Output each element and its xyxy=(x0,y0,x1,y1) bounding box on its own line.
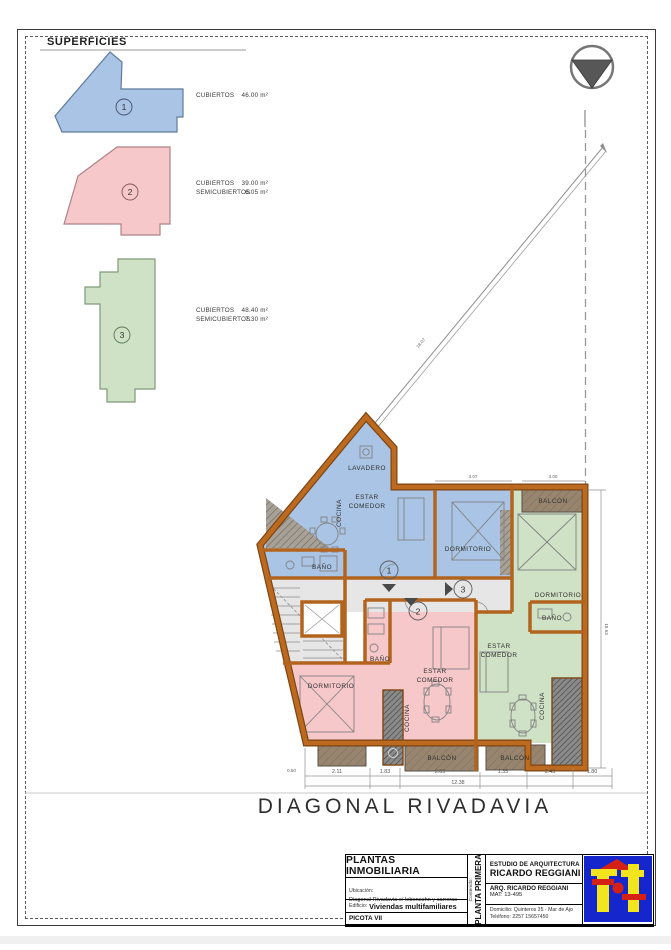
svg-text:3: 3 xyxy=(461,585,466,595)
location-label: Ubicación: xyxy=(349,888,373,894)
svg-text:1: 1 xyxy=(387,566,392,576)
dim-total: 12.38 xyxy=(451,780,464,786)
dim-top-left: 3.07 xyxy=(469,474,478,479)
room-label-balcon-top: BALCÓN xyxy=(538,496,567,505)
architect-matricula: MAT: 13-495 xyxy=(490,892,582,898)
room-label-dormitorio-u3: DORMITORIO xyxy=(535,592,581,599)
legend-unit2-number: 2 xyxy=(128,187,133,197)
location-row: Ubicación: Diagonal Rivadavia e/ lebenso… xyxy=(346,878,467,900)
hall-area xyxy=(345,578,512,612)
studio-line2: RICARDO REGGIANI xyxy=(490,868,582,878)
content-value: PLANTA PRIMERA xyxy=(475,855,484,924)
firm-logo xyxy=(583,855,653,924)
room-label-balcon-2: BALCÓN xyxy=(500,753,529,762)
legend-unit2-shape: 2 xyxy=(64,147,170,235)
dim-left-small: 0.50 xyxy=(287,768,296,773)
legend-unit2-semicubiertos-label: SEMICUBIERTOS xyxy=(196,189,251,196)
drawing: SUPERFICIES 1 CUBIERTOS 46.00 m² 2 CUBIE… xyxy=(0,0,671,950)
dim-seg-1: 2.11 xyxy=(332,769,342,775)
room-label-cocina-u3: COCINA xyxy=(539,692,546,720)
unit3-service-shaft xyxy=(552,678,582,767)
studio-phone: Teléfono: 2257 15657450 xyxy=(490,914,582,921)
svg-text:2: 2 xyxy=(416,607,421,617)
building-label: Edificio: xyxy=(349,903,367,909)
legend-unit3-semicubiertos-label: SEMICUBIERTOS xyxy=(196,316,251,323)
room-label-cocina-u2: COCINA xyxy=(404,704,411,732)
interunit-hatch xyxy=(500,510,512,575)
room-label-comedor-u1: COMEDOR xyxy=(349,503,386,510)
unit2-service-shaft xyxy=(383,690,403,765)
room-label-comedor-u2: COMEDOR xyxy=(417,677,454,684)
studio-line1: ESTUDIO DE ARQUITECTURA xyxy=(490,861,582,868)
legend-unit3-cubiertos-value: 48.40 m² xyxy=(242,307,268,314)
legend-unit3-shape: 3 xyxy=(85,259,155,402)
legend-unit2-cubiertos-label: CUBIERTOS xyxy=(196,180,234,187)
room-label-comedor-u3: COMEDOR xyxy=(481,652,518,659)
room-label-balcon-1: BALCÓN xyxy=(427,753,456,762)
building-value: Viviendas multifamiliares xyxy=(369,902,456,911)
title-block-left: PLANTAS INMOBILIARIA Ubicación: Diagonal… xyxy=(346,855,468,924)
room-label-bano-u1: BAÑO xyxy=(312,562,332,571)
architect-name: ARQ. RICARDO REGGIANI xyxy=(490,885,582,892)
room-label-estar-u3: ESTAR xyxy=(487,643,510,650)
dim-seg-2: 1.83 xyxy=(380,769,390,775)
room-label-dormitorio-u2: DORMITORIO xyxy=(308,683,354,690)
property-line-diagonal: 18.07 xyxy=(374,143,607,428)
building-row: Edificio: Viviendas multifamiliares xyxy=(346,900,467,913)
dim-right-vertical: 18.63 xyxy=(604,623,609,635)
sheet-title: PLANTAS INMOBILIARIA xyxy=(346,855,467,878)
title-block-studio: ESTUDIO DE ARQUITECTURA RICARDO REGGIANI… xyxy=(486,855,583,924)
dim-seg-4: 1.35 xyxy=(498,769,508,775)
legend-unit3-semicubiertos-value: 7.30 m² xyxy=(245,316,268,323)
project-code: PICOTA VII xyxy=(346,913,467,924)
legend-unit1-cubiertos-label: CUBIERTOS xyxy=(196,92,234,99)
dim-seg-5: 2.43 xyxy=(545,769,555,775)
diagonal-dimension: 18.07 xyxy=(415,337,426,349)
north-arrow-icon xyxy=(571,46,613,127)
room-label-lavadero: LAVADERO xyxy=(348,465,386,472)
studio-address: Domicilio: Quinteros 35 - Mar de Ajo xyxy=(490,907,582,914)
street-name: DIAGONAL RIVADAVIA xyxy=(258,795,553,818)
legend-unit1-number: 1 xyxy=(122,102,127,112)
legend-unit2-semicubiertos-value: 6.05 m² xyxy=(245,189,268,196)
legend-unit2-cubiertos-value: 39.00 m² xyxy=(242,180,268,187)
room-label-bano-u3: BAÑO xyxy=(542,613,562,622)
room-label-dormitorio-u1: DORMITORIO xyxy=(445,546,491,553)
dim-top-right: 3.00 xyxy=(549,474,558,479)
room-label-estar-u1: ESTAR xyxy=(355,494,378,501)
legend-unit1-cubiertos-value: 46.00 m² xyxy=(242,92,268,99)
legend-unit1-shape: 1 xyxy=(55,52,183,132)
legend-unit3-number: 3 xyxy=(120,330,125,340)
title-block: PLANTAS INMOBILIARIA Ubicación: Diagonal… xyxy=(345,854,654,927)
legend-unit3-cubiertos-label: CUBIERTOS xyxy=(196,307,234,314)
room-label-cocina-u1: COCINA xyxy=(336,499,343,527)
dim-seg-3: 2.65 xyxy=(435,769,445,775)
elevator xyxy=(302,602,342,636)
plan-sheet: SUPERFICIES 1 CUBIERTOS 46.00 m² 2 CUBIE… xyxy=(0,0,671,950)
room-label-estar-u2: ESTAR xyxy=(423,668,446,675)
dim-seg-6: 1.80 xyxy=(587,769,597,775)
superficies-title: SUPERFICIES xyxy=(47,36,127,48)
title-block-content-strip: Contenido: PLANTA PRIMERA xyxy=(468,855,486,924)
room-label-bano-u2: BAÑO xyxy=(370,654,390,663)
